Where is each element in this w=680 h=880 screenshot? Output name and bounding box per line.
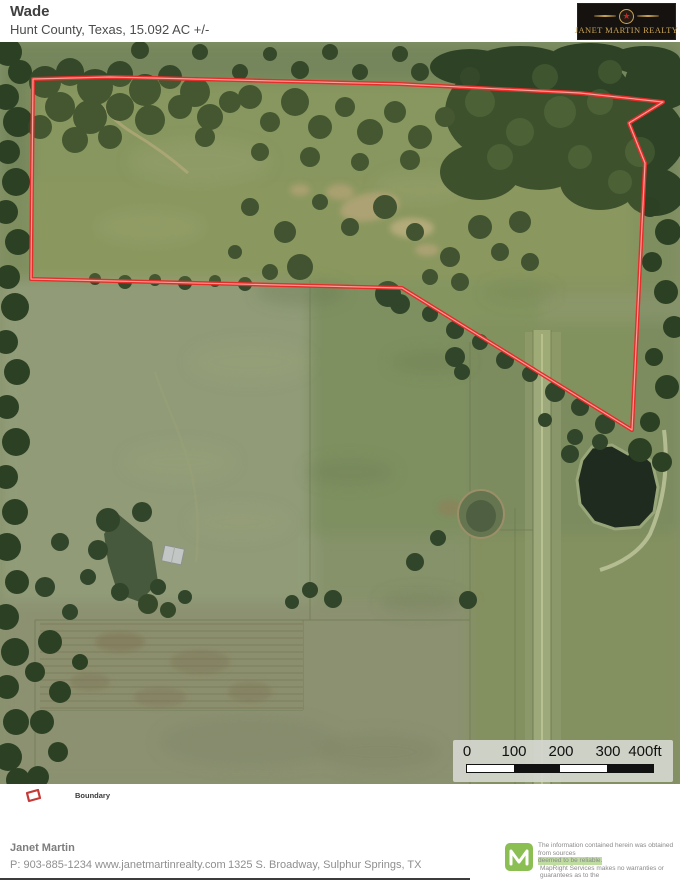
logo-wordmark: JANET MARTIN REALTY <box>575 25 678 39</box>
disclaimer-line-2: deemed to be reliable. <box>538 857 602 865</box>
mapright-logo-icon <box>505 843 533 871</box>
aerial-map: 0 100 200 300 400ft <box>0 42 680 784</box>
scale-label-0: 0 <box>463 743 471 760</box>
page-title: Wade <box>10 3 49 20</box>
logo-flourish-right <box>637 15 659 17</box>
page-subtitle: Hunt County, Texas, 15.092 AC +/- <box>10 22 209 37</box>
aerial-imagery <box>0 42 680 784</box>
header: Wade Hunt County, Texas, 15.092 AC +/- ★… <box>0 0 680 42</box>
map-export-page: Wade Hunt County, Texas, 15.092 AC +/- ★… <box>0 0 680 880</box>
disclaimer-text: The information contained herein was obt… <box>538 842 676 880</box>
scale-label-200: 200 <box>548 743 573 760</box>
agent-phone: P: 903-885-1234 <box>10 859 92 871</box>
janet-martin-realty-logo: ★ JANET MARTIN REALTY <box>577 3 676 40</box>
disclaimer-line-1: The information contained herein was obt… <box>538 842 676 857</box>
outbuilding <box>162 545 185 565</box>
footer: Janet Martin P: 903-885-1234 www.janetma… <box>0 832 680 880</box>
website-link[interactable]: www.janetmartinrealty.com <box>95 859 226 871</box>
scale-label-400ft: 400ft <box>628 743 661 760</box>
legend-item-boundary: Boundary <box>75 791 110 800</box>
logo-star-emblem: ★ <box>578 6 675 26</box>
logo-star-ring: ★ <box>619 9 634 24</box>
disclaimer-line-3: MapRight Services makes no warranties or… <box>538 865 676 880</box>
office-address: 1325 S. Broadway, Sulphur Springs, TX <box>228 859 421 871</box>
mapright-attribution: The information contained herein was obt… <box>505 842 675 876</box>
scale-bar-labels: 0 100 200 300 400ft <box>453 743 673 761</box>
star-icon: ★ <box>622 12 630 21</box>
agent-name: Janet Martin <box>10 842 75 854</box>
legend: Boundary <box>0 784 680 832</box>
scale-label-300: 300 <box>595 743 620 760</box>
scale-bar-segments <box>466 764 654 773</box>
scale-label-100: 100 <box>501 743 526 760</box>
boundary-legend-icon <box>25 789 42 803</box>
scale-bar: 0 100 200 300 400ft <box>453 740 673 782</box>
logo-flourish-left <box>594 15 616 17</box>
